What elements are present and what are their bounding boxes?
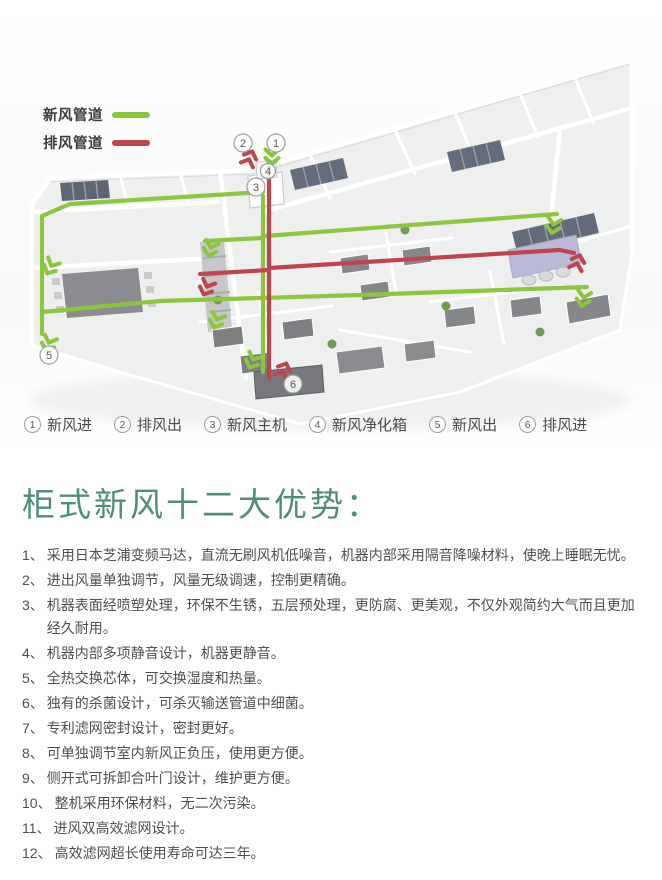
list-item: 8、 可单独调节室内新风正负压，使用更方便。 xyxy=(22,742,640,765)
legend-label-5: 新风出 xyxy=(452,414,497,435)
marker-3: 3 xyxy=(247,178,265,196)
item-number: 7、 xyxy=(22,717,44,740)
item-text: 全热交换芯体，可交换湿度和热量。 xyxy=(47,667,640,690)
exhaust-duct-swatch xyxy=(112,140,150,146)
list-item: 12、 高效滤网超长使用寿命可达三年。 xyxy=(22,842,640,865)
item-text: 侧开式可拆卸合叶门设计，维护更方便。 xyxy=(47,767,640,790)
list-item: 9、 侧开式可拆卸合叶门设计，维护更方便。 xyxy=(22,767,640,790)
legend-circle-3: 3 xyxy=(204,416,221,433)
item-number: 5、 xyxy=(22,667,44,690)
legend-label-4: 新风净化箱 xyxy=(332,414,407,435)
grid-room-top-left xyxy=(60,180,110,201)
item-text: 可单独调节室内新风正负压，使用更方便。 xyxy=(47,742,640,765)
list-item: 7、 专利滤网密封设计，密封更好。 xyxy=(22,717,640,740)
item-text: 独有的杀菌设计，可杀灭输送管道中细菌。 xyxy=(47,692,640,715)
legend-circle-5: 5 xyxy=(429,416,446,433)
marker-legend: 1 新风进 2 排风出 3 新风主机 4 新风净化箱 5 新风出 6 排风进 xyxy=(24,414,644,435)
item-text: 机器内部多项静音设计，机器更静音。 xyxy=(47,642,640,665)
fresh-duct-label: 新风管道 xyxy=(43,104,103,125)
item-text: 高效滤网超长使用寿命可达三年。 xyxy=(55,842,640,865)
list-item: 10、 整机采用环保材料，无二次污染。 xyxy=(22,792,640,815)
svg-text:3: 3 xyxy=(253,182,259,194)
list-item: 4、 机器内部多项静音设计，机器更静音。 xyxy=(22,642,640,665)
legend-label-6: 排风进 xyxy=(542,414,587,435)
list-item: 5、 全热交换芯体，可交换湿度和热量。 xyxy=(22,667,640,690)
svg-text:6: 6 xyxy=(290,379,296,391)
item-number: 9、 xyxy=(22,767,44,790)
page-title: 柜式新风十二大优势： xyxy=(22,478,662,526)
marker-5: 5 xyxy=(40,346,58,364)
item-text: 进风双高效滤网设计。 xyxy=(54,817,640,840)
legend-item-1: 1 新风进 xyxy=(24,414,92,435)
floorplan-illustration: 2 1 4 3 5 6 xyxy=(0,0,662,452)
marker-2: 2 xyxy=(234,134,252,152)
legend-item-5: 5 新风出 xyxy=(429,414,497,435)
ventilation-floorplan-diagram: 2 1 4 3 5 6 xyxy=(0,0,662,452)
legend-item-2: 2 排风出 xyxy=(114,414,182,435)
item-number: 1、 xyxy=(22,544,44,567)
svg-text:5: 5 xyxy=(46,350,52,362)
fresh-duct-swatch xyxy=(112,112,150,118)
legend-item-4: 4 新风净化箱 xyxy=(309,414,407,435)
svg-text:1: 1 xyxy=(273,138,279,150)
legend-item-6: 6 排风进 xyxy=(519,414,587,435)
legend-label-3: 新风主机 xyxy=(227,414,287,435)
item-text: 专利滤网密封设计，密封更好。 xyxy=(47,717,640,740)
legend-item-3: 3 新风主机 xyxy=(204,414,287,435)
item-text: 采用日本芝浦变频马达，直流无刷风机低噪音，机器内部采用隔音降噪材料，使晚上睡眠无… xyxy=(47,544,640,567)
exhaust-duct-label: 排风管道 xyxy=(43,132,103,153)
exhaust-duct-legend-row: 排风管道 xyxy=(43,132,150,153)
duct-legend: 新风管道 排风管道 xyxy=(43,104,150,153)
list-item: 2、 进出风量单独调节，风量无级调速，控制更精确。 xyxy=(22,569,640,592)
item-text: 机器表面经喷塑处理，环保不生锈，五层预处理，更防腐、更美观，不仅外观简约大气而且… xyxy=(47,594,640,640)
item-number: 3、 xyxy=(22,594,44,640)
page: 2 1 4 3 5 6 xyxy=(0,0,662,880)
marker-4: 4 xyxy=(261,164,276,179)
advantages-list: 1、 采用日本芝浦变频马达，直流无刷风机低噪音，机器内部采用隔音降噪材料，使晚上… xyxy=(22,544,640,865)
item-number: 8、 xyxy=(22,742,44,765)
item-number: 2、 xyxy=(22,569,44,592)
list-item: 3、 机器表面经喷塑处理，环保不生锈，五层预处理，更防腐、更美观，不仅外观简约大… xyxy=(22,594,640,640)
item-number: 12、 xyxy=(22,842,52,865)
marker-6: 6 xyxy=(284,375,302,393)
list-item: 1、 采用日本芝浦变频马达，直流无刷风机低噪音，机器内部采用隔音降噪材料，使晚上… xyxy=(22,544,640,567)
list-item: 6、 独有的杀菌设计，可杀灭输送管道中细菌。 xyxy=(22,692,640,715)
legend-circle-2: 2 xyxy=(114,416,131,433)
item-text: 进出风量单独调节，风量无级调速，控制更精确。 xyxy=(47,569,640,592)
list-item: 11、 进风双高效滤网设计。 xyxy=(22,817,640,840)
svg-text:2: 2 xyxy=(240,138,246,150)
svg-text:4: 4 xyxy=(265,166,271,178)
item-text: 整机采用环保材料，无二次污染。 xyxy=(55,792,640,815)
item-number: 11、 xyxy=(22,817,51,840)
legend-circle-1: 1 xyxy=(24,416,41,433)
fresh-duct-legend-row: 新风管道 xyxy=(43,104,150,125)
legend-circle-4: 4 xyxy=(309,416,326,433)
item-number: 6、 xyxy=(22,692,44,715)
legend-circle-6: 6 xyxy=(519,416,536,433)
legend-label-1: 新风进 xyxy=(47,414,92,435)
marker-1: 1 xyxy=(267,134,285,152)
legend-label-2: 排风出 xyxy=(137,414,182,435)
item-number: 10、 xyxy=(22,792,52,815)
item-number: 4、 xyxy=(22,642,44,665)
